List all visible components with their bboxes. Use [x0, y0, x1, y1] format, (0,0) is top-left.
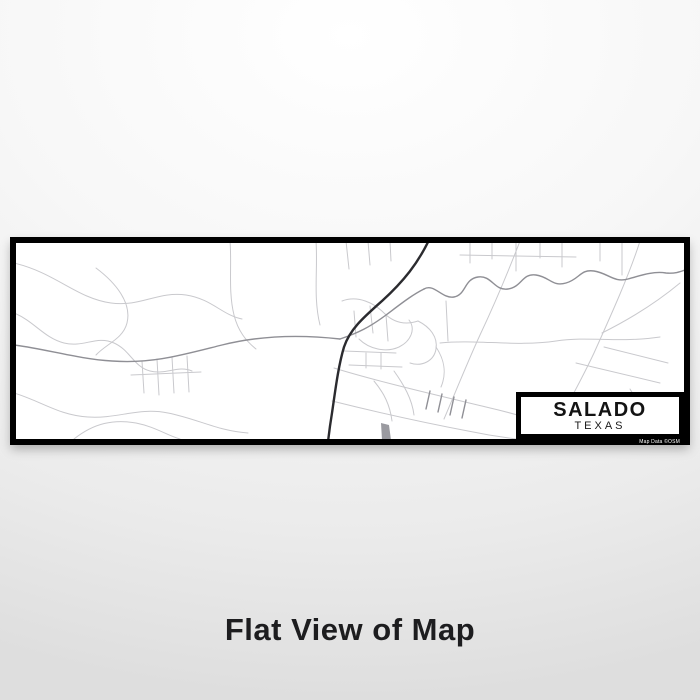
highway-layer	[328, 243, 429, 439]
map-print-frame: SALADO TEXAS Map Data ©OSM	[10, 237, 690, 445]
map-city-label: SALADO	[553, 400, 646, 420]
map-attribution: Map Data ©OSM	[639, 439, 680, 445]
pond-shape	[381, 423, 391, 439]
map-title-box: SALADO TEXAS	[516, 392, 684, 439]
map-state-label: TEXAS	[574, 421, 625, 432]
view-caption: Flat View of Map	[0, 612, 700, 648]
